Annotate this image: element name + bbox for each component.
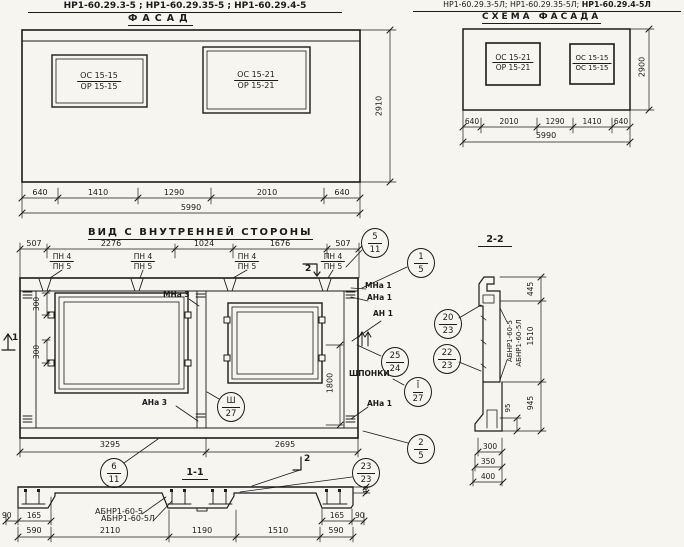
window-mark-top: ОС 15-21 [492,53,533,63]
balloon-top: 1 [414,252,427,265]
balloon-bottom: 24 [388,363,403,374]
dim-label: 1410 [582,118,601,126]
schema-title-left: НР1-60.29.3-5Л; НР1-60.29.35-5Л; [443,0,579,9]
loop-mark-top: ПН 4 [131,252,155,262]
anchor-label-mna1: МНа 1 [365,282,392,290]
window-mark-top: ОС 15-15 [77,71,121,82]
anchor-label-mna3: МНа 3 [163,291,190,299]
dim-label: 1800 [327,373,336,393]
balloon-top: 20 [439,313,458,326]
dim-label: 2010 [499,118,518,126]
dim-total-label: 5990 [181,204,201,213]
dim-label: 2276 [101,240,121,249]
balloon-bottom: 27 [224,408,239,419]
callout-balloon-22-23: 22 23 [433,344,461,374]
anchor-label-ana1: АНа 1 [367,294,392,302]
schema-drawing [460,26,654,147]
loop-mark: ПН 4 ПН 5 [131,252,155,272]
loop-mark: ПН 4 ПН 5 [50,252,74,272]
window-mark-top: ОС 15-15 [573,54,612,64]
balloon-top: Ш [222,396,239,409]
dim-label: 2010 [257,189,277,198]
dim-height-label: 2910 [376,96,385,116]
part-label-abnr: АБНР1-60-5 [507,320,515,362]
loop-mark-bottom: ПН 5 [321,262,345,271]
callout-balloon-III-27: Ш 27 [217,392,245,422]
balloon-bottom: 23 [359,474,374,485]
dim-label: 1510 [527,326,535,345]
dim-label: 507 [26,240,41,249]
dim-label: 945 [527,396,535,410]
dim-label: 507 [335,240,350,249]
loop-mark: ПН 4 ПН 5 [321,252,345,272]
window-mark-bottom: ОР 15-21 [492,63,533,72]
dim-label: 1190 [192,527,212,536]
balloon-bottom: 11 [107,474,122,485]
dim-label: 1290 [545,118,564,126]
section-2-2-drawing [459,274,546,486]
dim-label: 1290 [164,189,184,198]
dim-label: 400 [481,473,495,481]
facade-window-left-mark: ОС 15-15 ОР 15-15 [77,71,121,92]
callout-balloon-I-27: Ī 27 [404,377,432,407]
dim-label: 640 [465,118,479,126]
schema-subtitle: СХЕМА ФАСАДА [482,12,601,24]
anchor-label-ana1-lower: АНа 1 [367,400,392,408]
loop-mark-top: ПН 4 [50,252,74,262]
window-mark-bottom: ОР 15-15 [77,82,121,92]
dim-label: 1024 [194,240,214,249]
part-label-abnr-l: АБНР1-60-5Л [516,319,524,366]
dim-label: 1676 [270,240,290,249]
callout-balloon-1-5: 1 5 [407,248,435,278]
dim-label: 2695 [275,441,295,450]
section-1-1-title: 1-1 [182,467,208,480]
window-mark-top: ОС 15-21 [234,70,278,81]
anchor-label-an1: АН 1 [373,310,393,318]
balloon-top: 5 [368,232,381,245]
dim-label: 1510 [268,527,288,536]
dim-label: 300 [33,297,41,311]
balloon-bottom: 5 [416,450,425,461]
callout-balloon-6-11: 6 11 [100,458,128,488]
dim-label: 590 [26,527,41,536]
section-2-2-title: 2-2 [478,234,512,247]
window-mark-bottom: ОР 15-21 [234,81,278,91]
balloon-top: Ī [413,381,424,394]
loop-mark-bottom: ПН 5 [50,262,74,271]
schema-window-left-mark: ОС 15-21 ОР 15-21 [492,53,533,73]
dim-label: 640 [614,118,628,126]
inner-view-drawing [2,243,408,492]
balloon-top: 23 [357,462,376,475]
schema-title-right: НР1-60.29.4-5Л [582,0,651,9]
dim-label: 300 [33,345,41,359]
dim-label: 165 [330,512,344,520]
facade-window-right-mark: ОС 15-21 ОР 15-21 [234,70,278,91]
blueprint-sheet: НР1-60.29.3-5 ; НР1-60.29.35-5 ; НР1-60.… [0,0,684,547]
balloon-top: 22 [438,348,457,361]
balloon-bottom: 23 [441,325,456,336]
dim-label: 590 [328,527,343,536]
window-mark-bottom: ОС 15-15 [573,64,612,73]
callout-balloon-25-24: 25 24 [381,347,409,377]
dim-label: 90 [2,512,12,520]
dim-label: 640 [32,189,47,198]
dim-total-label: 5990 [536,132,556,141]
callout-balloon-2-5: 2 5 [407,434,435,464]
balloon-top: 2 [414,438,427,451]
balloon-bottom: 11 [368,244,383,255]
callout-balloon-20-23: 20 23 [434,309,462,339]
loop-mark-bottom: ПН 5 [131,262,155,271]
cut-mark-2-bottom-label: 2 [304,455,310,465]
schema-title: НР1-60.29.3-5Л; НР1-60.29.35-5Л; НР1-60.… [413,1,681,12]
loop-mark: ПН 4 ПН 5 [235,252,259,272]
loop-mark-bottom: ПН 5 [235,262,259,271]
loop-mark-top: ПН 4 [321,252,345,262]
schema-window-right-mark: ОС 15-15 ОС 15-15 [573,54,612,73]
loop-mark-top: ПН 4 [235,252,259,262]
balloon-bottom: 5 [416,264,425,275]
dim-label: 3295 [100,441,120,450]
facade-title: НР1-60.29.3-5 ; НР1-60.29.35-5 ; НР1-60.… [28,1,342,13]
dim-label: 165 [27,512,41,520]
callout-balloon-5-11: 5 11 [361,228,389,258]
section-1-1-drawing [3,484,370,542]
dim-label: 445 [527,282,535,296]
facade-subtitle: ФАСАД [128,13,193,26]
dim-label: 300 [483,443,497,451]
cut-mark-1-label: 1 [12,334,18,344]
balloon-top: 25 [386,351,405,364]
dim-label: 90 [355,512,365,520]
dim-label: 95 [505,404,513,413]
dim-label: 640 [334,189,349,198]
dim-label: 40 [363,486,371,495]
callout-balloon-23-23: 23 23 [352,458,380,488]
anchor-label-ana3: АНа 3 [142,399,167,407]
cut-mark-2-label: 2 [305,265,311,275]
dim-label: 350 [481,458,495,466]
dim-height-label: 2900 [639,57,648,77]
balloon-top: 6 [107,462,120,475]
balloon-bottom: 27 [411,393,426,404]
balloon-bottom: 23 [440,360,455,371]
dim-label: 1410 [88,189,108,198]
dim-label: 2110 [100,527,120,536]
part-label-abnr-l: АБНР1-60-5Л [101,515,155,524]
